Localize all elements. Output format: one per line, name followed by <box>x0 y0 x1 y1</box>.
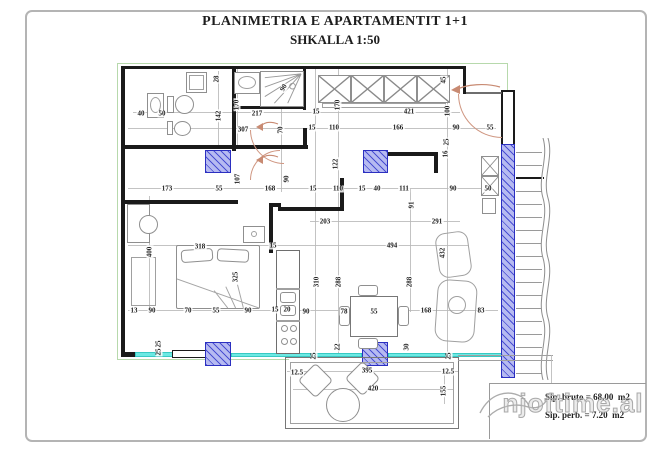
dim-label: 70 <box>184 308 193 315</box>
dim-label: 55 <box>486 125 495 132</box>
dim-label: 15 <box>309 186 318 193</box>
dim-label: 325 <box>233 271 240 284</box>
wall-entry-right <box>501 90 515 148</box>
dim-label: 30 <box>404 343 411 352</box>
column <box>363 150 388 173</box>
green-outline-left <box>117 63 118 360</box>
dim-label: 111 <box>398 186 410 193</box>
dim-label: 12.5 <box>441 369 455 376</box>
dim-label: 22 <box>335 343 342 352</box>
balcony-table <box>326 388 360 422</box>
wall-corridor <box>388 152 438 156</box>
dim-label: 78 <box>340 309 349 316</box>
stove-burner <box>281 338 288 345</box>
dim-label: 288 <box>336 276 343 289</box>
dim-label: 432 <box>440 247 447 260</box>
wall-hall-stub <box>303 128 307 147</box>
shear-wall <box>501 144 515 378</box>
dim-label: 90 <box>449 186 458 193</box>
dim-label: 13 <box>130 308 139 315</box>
dim-label: 494 <box>386 243 399 250</box>
dim-label: 15 <box>308 125 317 132</box>
dim-label: 25 <box>311 352 318 361</box>
cabinet-box <box>481 156 499 176</box>
wardrobe-box <box>384 75 417 103</box>
nightstand-knob <box>251 231 257 237</box>
watermark-text: njoftime.al <box>486 388 660 419</box>
wall-nook-bottom <box>278 207 344 211</box>
dim-label: 155 <box>441 385 448 398</box>
dim-label: 50 <box>484 186 493 193</box>
dim-label: 318 <box>194 244 207 251</box>
dim-label: 28 <box>214 75 221 84</box>
wardrobe-box <box>351 75 384 103</box>
column <box>205 342 231 366</box>
dining-chair <box>358 338 378 349</box>
dim-label: 170 <box>234 99 241 112</box>
dim-label: 55 <box>215 186 224 193</box>
dim-label: 90 <box>284 175 291 184</box>
dim-label: 203 <box>319 219 332 226</box>
dim-label: 40 <box>373 186 382 193</box>
wall-top <box>121 66 466 69</box>
dim-label: 217 <box>251 111 264 118</box>
entry-arrow-icon <box>448 82 502 96</box>
dim-label: 90 <box>244 308 253 315</box>
sink-bowl <box>280 292 296 303</box>
dining-chair <box>398 306 409 326</box>
floor-plan: 2817040501422179030770151704211004515110… <box>0 0 670 450</box>
dim-label: 15 <box>358 186 367 193</box>
dim-label: 15 <box>271 307 280 314</box>
wall-bath-bottom <box>121 145 235 149</box>
terrace-edge <box>551 355 552 383</box>
desk-chair <box>139 215 158 234</box>
counter-divider <box>276 320 300 322</box>
dim-label: 421 <box>403 109 416 116</box>
terrace-parapet <box>458 355 553 361</box>
green-outline-bottom <box>117 359 289 360</box>
dim-label: 45 <box>441 76 448 85</box>
sofa-cushion <box>448 296 466 314</box>
wall-bottom-corner <box>121 352 135 357</box>
washing-machine-drum <box>189 75 204 90</box>
dim-label: 40 <box>137 111 146 118</box>
dim-label: 90 <box>452 125 461 132</box>
arrow-icon <box>254 153 280 166</box>
dim-label: 70 <box>278 126 285 135</box>
dim-label: 25 <box>156 348 163 357</box>
stove-burner <box>290 338 297 345</box>
dim-label: 168 <box>420 308 433 315</box>
dim-label: 288 <box>407 276 414 289</box>
stove-burner <box>290 325 297 332</box>
break-line-icon <box>537 138 553 380</box>
dim-label: 170 <box>335 99 342 112</box>
dim-label: 55 <box>370 309 379 316</box>
dim-label: 25 <box>444 138 451 147</box>
bidet-tank <box>167 121 173 135</box>
toilet-icon <box>175 95 194 114</box>
entry-door-arc <box>458 94 502 138</box>
dim-label: 142 <box>216 110 223 123</box>
dim-label: 83 <box>477 308 486 315</box>
dining-chair <box>358 285 378 296</box>
dim-label: 395 <box>361 368 374 375</box>
toilet-tank <box>167 96 174 113</box>
tv-cabinet <box>482 198 496 214</box>
stove-burner <box>281 325 288 332</box>
dining-table <box>350 296 398 337</box>
dim-label: 310 <box>314 276 321 289</box>
green-outline-right <box>507 63 508 93</box>
dim-label: 15 <box>269 243 278 250</box>
washbasin-2-bowl <box>238 76 256 89</box>
dim-label: 168 <box>264 186 277 193</box>
counter-divider <box>276 288 300 290</box>
green-outline-top <box>117 63 507 64</box>
dim-label: 91 <box>409 201 416 210</box>
dim-label: 107 <box>235 173 242 186</box>
wall-nook-right <box>340 178 344 210</box>
column <box>205 150 231 173</box>
wall-corridor-stub <box>434 152 438 173</box>
dim-label: 110 <box>328 125 340 132</box>
bidet-icon <box>174 121 191 136</box>
dim-label: 15 <box>312 109 321 116</box>
wall-left <box>121 66 125 357</box>
dim-label: 307 <box>237 127 250 134</box>
dim-label: 420 <box>367 386 380 393</box>
dim-label: 166 <box>392 125 405 132</box>
dim-label: 90 <box>302 309 311 316</box>
dim-label: 20 <box>283 307 292 314</box>
pillow <box>217 248 250 263</box>
dim-label: 12.5 <box>290 370 304 377</box>
dim-label: 110 <box>332 186 344 193</box>
dim-label: 25 <box>446 352 453 361</box>
dim-label: 400 <box>147 246 154 259</box>
dim-label: 16 <box>443 150 450 159</box>
dim-label: 291 <box>431 219 444 226</box>
dim-label: 173 <box>161 186 174 193</box>
dim-label: 90 <box>148 308 157 315</box>
wall-bottom-piece <box>172 350 206 358</box>
rug <box>131 257 156 306</box>
dim-label: 122 <box>333 158 340 171</box>
dim-label: 50 <box>158 111 167 118</box>
dim-label: 55 <box>212 308 221 315</box>
drawing-sheet: PLANIMETRIA E APARTAMENTIT 1+1 SHKALLA 1… <box>0 0 670 450</box>
dim-label: 100 <box>445 105 452 118</box>
